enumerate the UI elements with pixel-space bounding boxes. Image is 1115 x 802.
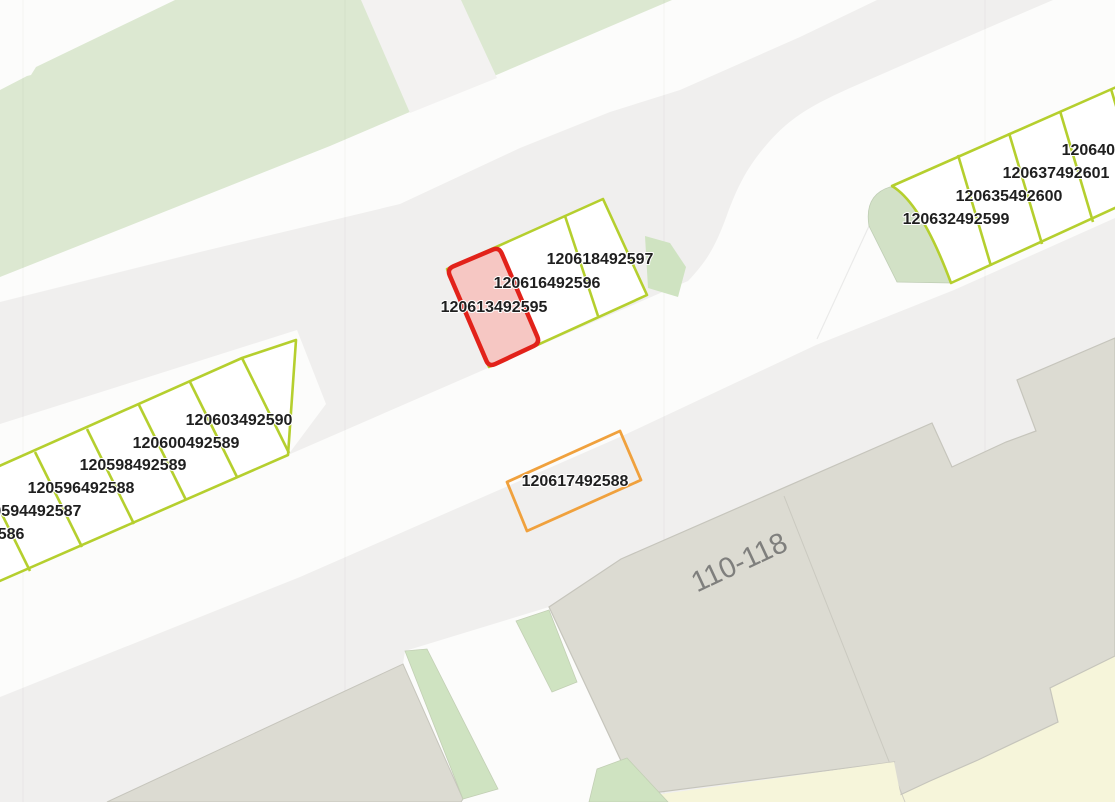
svg-text:120596492588: 120596492588	[28, 480, 135, 497]
svg-text:120635492600: 120635492600	[956, 188, 1063, 205]
svg-text:120640492602: 120640492602	[1062, 142, 1115, 159]
svg-text:120618492597: 120618492597	[547, 251, 654, 268]
svg-text:120617492588: 120617492588	[522, 473, 629, 490]
svg-text:120598492589: 120598492589	[80, 457, 187, 474]
svg-text:120637492601: 120637492601	[1003, 165, 1110, 182]
svg-text:120616492596: 120616492596	[494, 275, 601, 292]
svg-text:120592492586: 120592492586	[0, 526, 24, 543]
svg-text:120603492590: 120603492590	[186, 412, 293, 429]
svg-text:120613492595: 120613492595	[441, 299, 548, 316]
svg-text:120600492589: 120600492589	[133, 435, 240, 452]
svg-text:120594492587: 120594492587	[0, 503, 81, 520]
svg-text:120632492599: 120632492599	[903, 211, 1010, 228]
